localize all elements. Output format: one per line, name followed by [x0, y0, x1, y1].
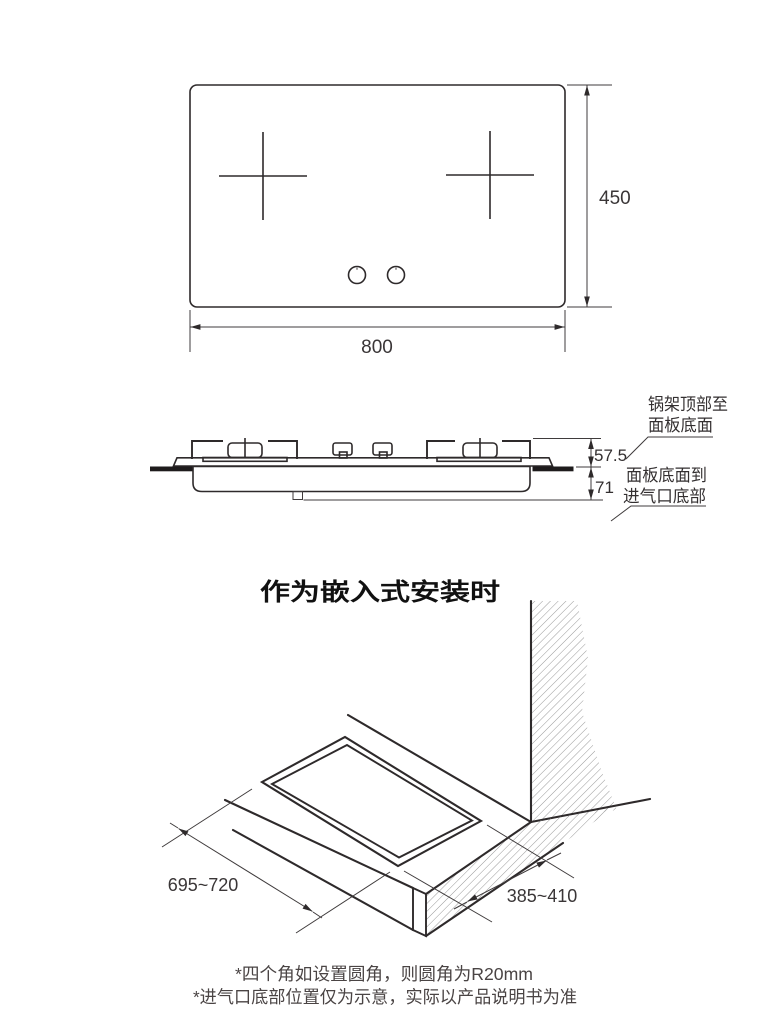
callout-inlet-line1: 面板底面到 [626, 466, 707, 485]
control-knob-right [373, 443, 392, 458]
width-dim-label: 800 [361, 337, 393, 358]
panel-to-inlet-dim-label: 71 [595, 478, 614, 497]
wall-hatch [531, 601, 617, 822]
note-line-1: *四个角如设置圆角，则圆角为R20mm [235, 964, 533, 984]
dim-width-800: 800 [190, 310, 565, 358]
callout-panel-to-inlet: 面板底面到 进气口底部 [611, 466, 707, 521]
dim-height-450: 450 [567, 85, 631, 307]
control-knob-left [333, 443, 352, 458]
countertop-edge-right [533, 467, 574, 472]
cooktop-body-section [193, 467, 530, 492]
cooktop-panel-outline [190, 85, 565, 307]
installation-spec-page: 450 800 [0, 0, 768, 1024]
cooktop-side-view: 57.5 71 锅架顶部至 面板底面 面板底面到 进气口底部 [150, 395, 728, 521]
height-dim-label: 450 [599, 188, 631, 209]
built-in-install-view: 作为嵌入式安装时 695~720 385~410 [162, 578, 650, 936]
spec-drawing-canvas: 450 800 [0, 0, 768, 1024]
callout-rack-leader [626, 437, 713, 459]
callout-inlet-line2: 进气口底部 [623, 487, 706, 506]
built-in-title: 作为嵌入式安装时 [260, 578, 500, 606]
gas-inlet [293, 492, 303, 500]
callout-rack-line1: 锅架顶部至 [648, 395, 728, 414]
counter-back-edge [348, 715, 531, 822]
rack-to-panel-dim-label: 57.5 [594, 446, 627, 465]
callout-rack-line2: 面板底面 [648, 416, 713, 435]
cutout-length-label: 695~720 [168, 875, 239, 895]
cutout-inner [272, 745, 472, 858]
callout-rack-to-panel: 锅架顶部至 面板底面 [626, 395, 728, 459]
front-lip-section [413, 888, 426, 936]
cooktop-top-view: 450 800 [190, 85, 631, 358]
footnotes: *四个角如设置圆角，则圆角为R20mm *进气口底部位置仅为示意，实际以产品说明… [193, 964, 577, 1007]
countertop-edge-left [150, 467, 193, 472]
burner-cross-left-icon [219, 132, 307, 220]
cutout-outer [262, 737, 481, 866]
burner-cross-right-icon [446, 131, 534, 219]
cutout-depth-label: 385~410 [507, 886, 578, 906]
note-line-2: *进气口底部位置仅为示意，实际以产品说明书为准 [193, 987, 577, 1007]
callout-inlet-leader [611, 506, 706, 521]
